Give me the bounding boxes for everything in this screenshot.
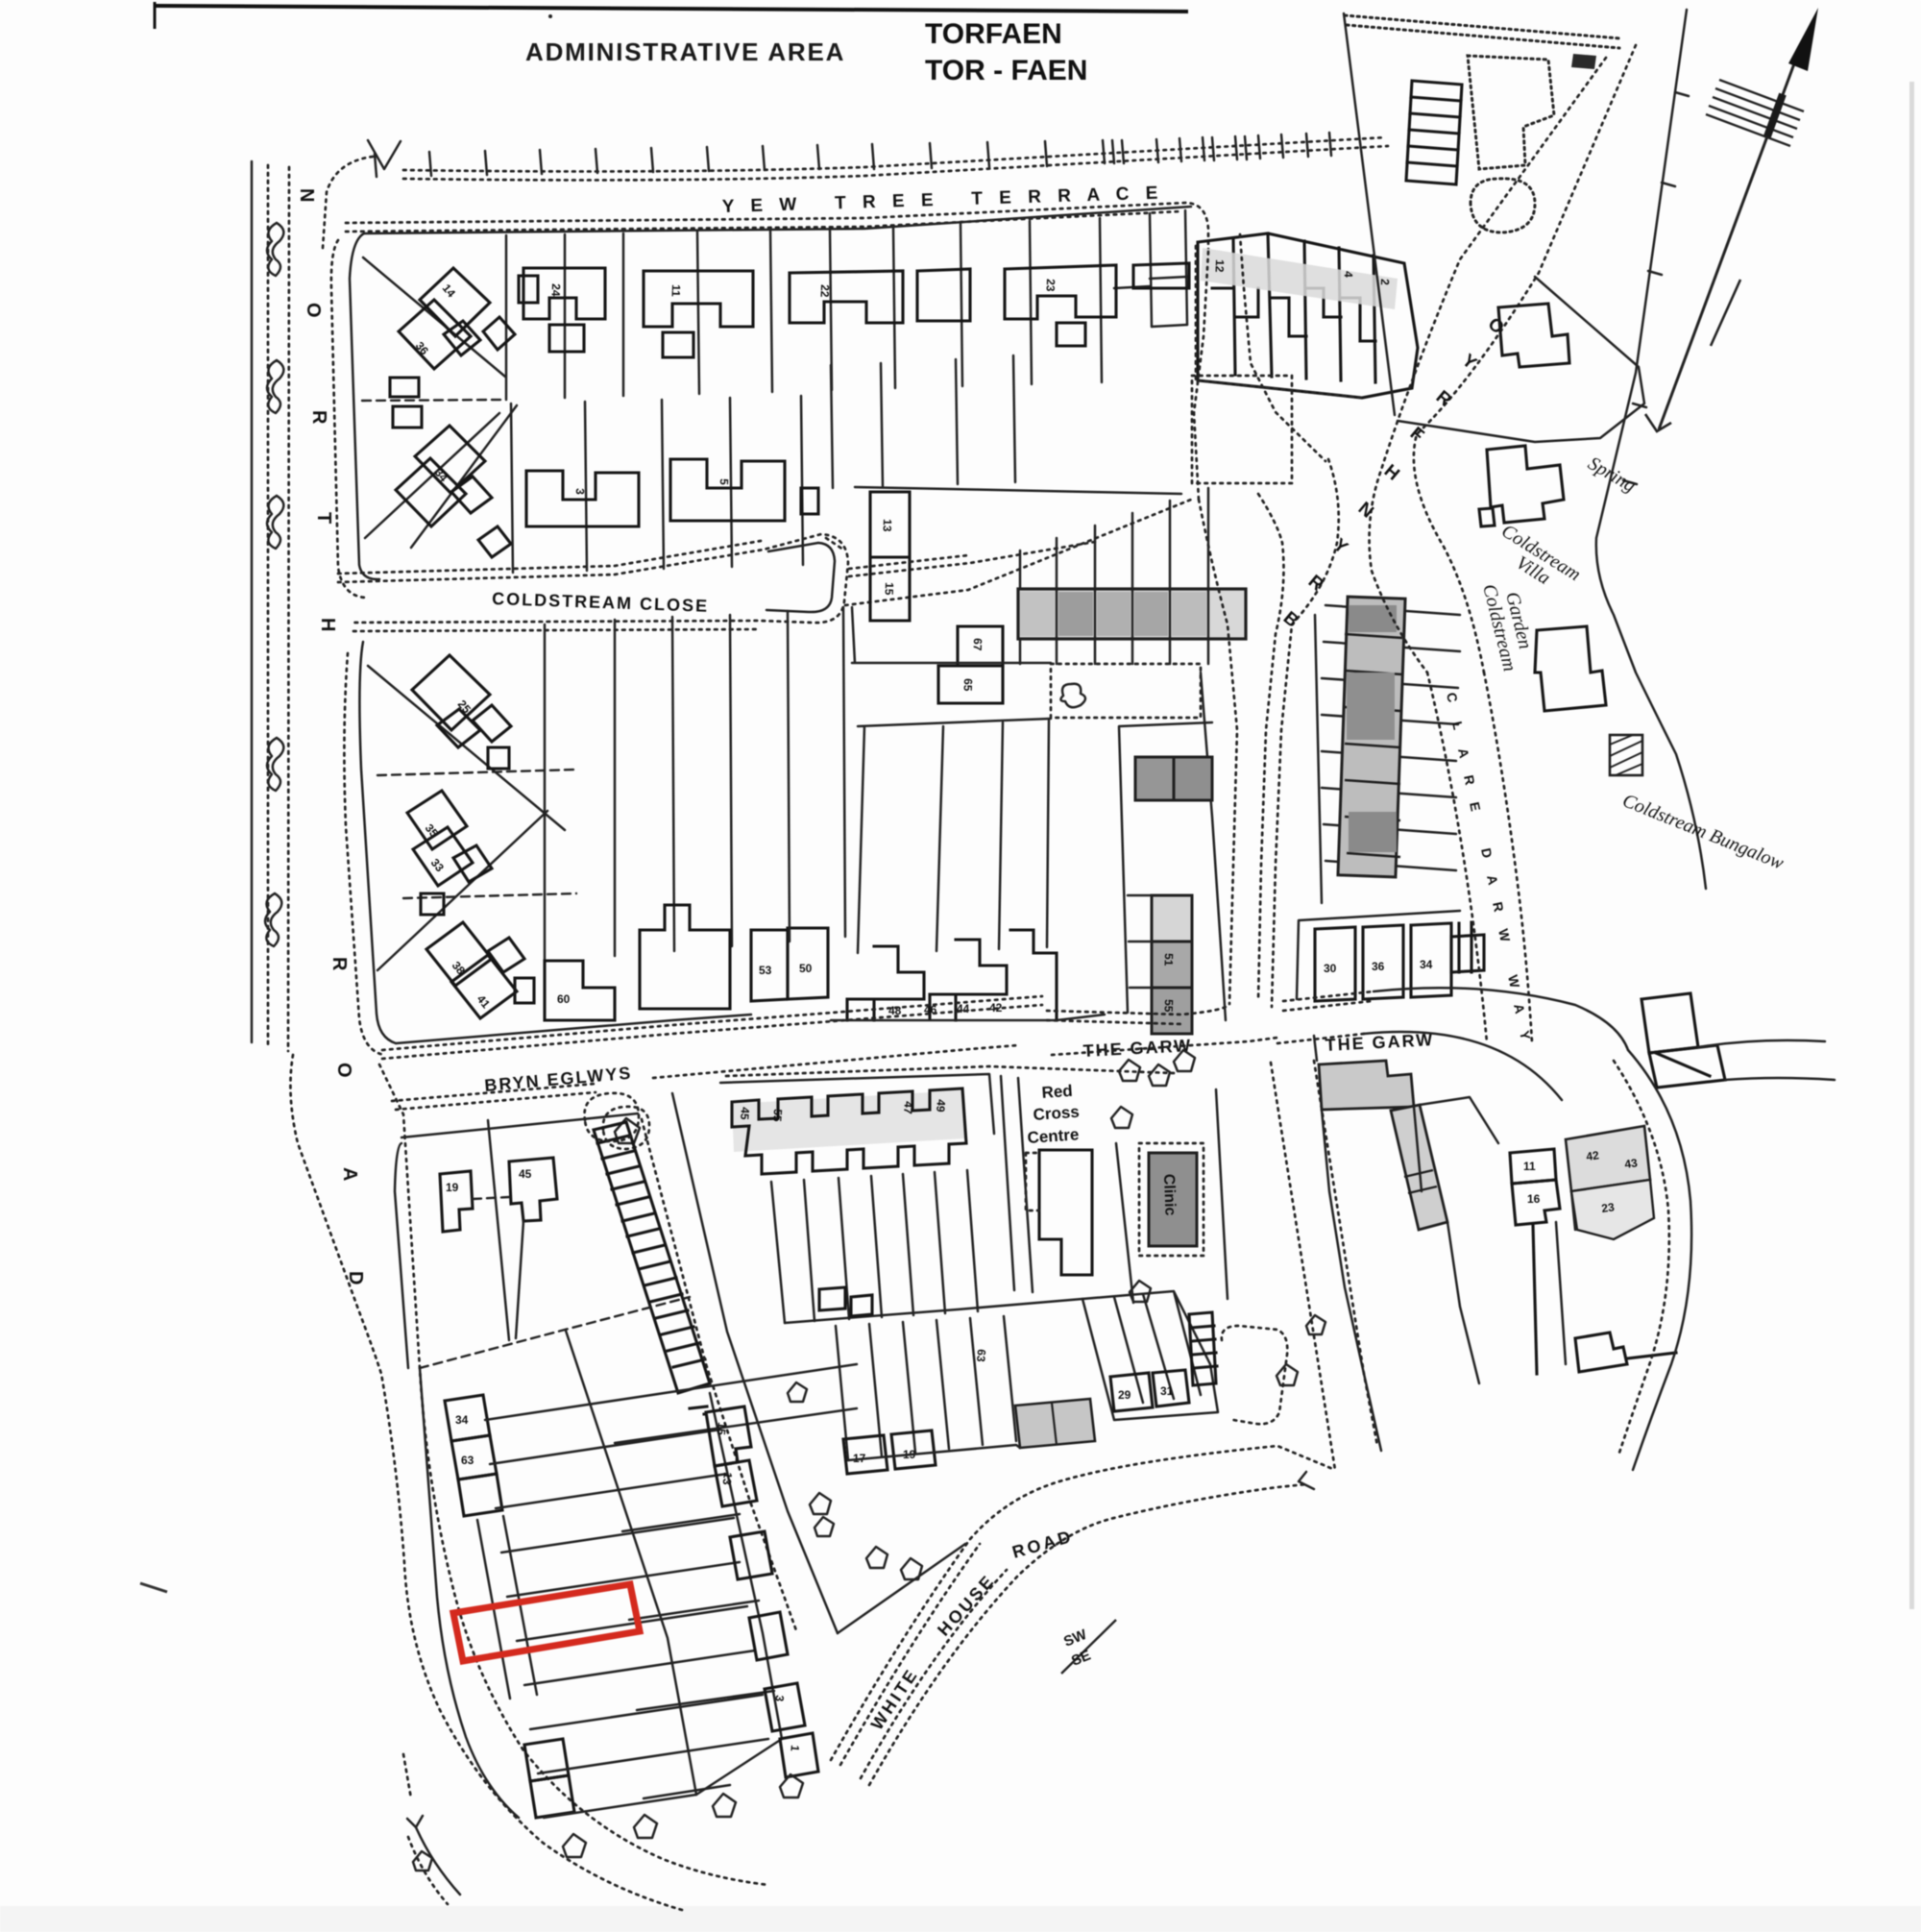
svg-text:12: 12 xyxy=(1213,259,1227,273)
svg-text:36: 36 xyxy=(1372,960,1385,973)
svg-text:Clinic: Clinic xyxy=(1160,1174,1179,1216)
svg-text:63: 63 xyxy=(461,1454,474,1467)
svg-text:47: 47 xyxy=(901,1101,915,1115)
svg-text:15: 15 xyxy=(715,1422,729,1436)
svg-text:TORFAEN: TORFAEN xyxy=(925,18,1062,50)
svg-text:TOR - FAEN: TOR - FAEN xyxy=(925,55,1087,86)
svg-text:T: T xyxy=(313,512,334,524)
svg-text:34: 34 xyxy=(1420,958,1433,971)
svg-text:45: 45 xyxy=(738,1107,752,1121)
svg-text:63: 63 xyxy=(974,1349,988,1363)
svg-text:60: 60 xyxy=(557,992,571,1006)
svg-text:O: O xyxy=(303,303,324,318)
svg-text:22: 22 xyxy=(818,284,832,298)
svg-text:55: 55 xyxy=(770,1109,785,1123)
svg-text:N: N xyxy=(296,188,317,202)
svg-text:55: 55 xyxy=(1162,999,1176,1013)
svg-text:R: R xyxy=(308,410,329,425)
svg-text:ADMINISTRATIVE AREA: ADMINISTRATIVE AREA xyxy=(525,37,845,66)
svg-text:50: 50 xyxy=(799,962,813,975)
svg-text:A: A xyxy=(339,1167,360,1181)
svg-text:13: 13 xyxy=(720,1472,735,1486)
svg-text:Cross: Cross xyxy=(1033,1103,1080,1124)
svg-text:67: 67 xyxy=(971,638,985,651)
svg-text:51: 51 xyxy=(1162,953,1176,966)
svg-text:29: 29 xyxy=(1118,1388,1131,1402)
svg-text:11: 11 xyxy=(1523,1160,1536,1173)
svg-text:30: 30 xyxy=(1324,962,1337,975)
svg-text:31: 31 xyxy=(1160,1384,1174,1398)
svg-text:Centre: Centre xyxy=(1027,1125,1080,1147)
svg-text:23: 23 xyxy=(1044,279,1058,292)
svg-text:4: 4 xyxy=(1342,271,1355,278)
svg-text:45: 45 xyxy=(519,1167,532,1181)
svg-text:5: 5 xyxy=(717,478,731,485)
svg-text:23: 23 xyxy=(1600,1200,1615,1215)
svg-text:34: 34 xyxy=(455,1413,469,1427)
svg-text:H: H xyxy=(317,618,338,631)
svg-text:19: 19 xyxy=(446,1181,459,1194)
svg-text:49: 49 xyxy=(934,1099,948,1113)
svg-text:11: 11 xyxy=(669,284,683,297)
svg-text:24: 24 xyxy=(549,283,563,297)
svg-text:R: R xyxy=(328,957,350,971)
svg-text:2: 2 xyxy=(1378,279,1392,285)
svg-text:Red: Red xyxy=(1041,1082,1073,1102)
svg-text:O: O xyxy=(333,1063,354,1078)
svg-text:15: 15 xyxy=(883,582,896,596)
svg-text:53: 53 xyxy=(759,964,772,977)
svg-text:43: 43 xyxy=(1623,1156,1638,1171)
svg-text:42: 42 xyxy=(1585,1148,1599,1163)
svg-text:65: 65 xyxy=(961,678,975,692)
svg-text:16: 16 xyxy=(1527,1192,1541,1206)
svg-text:13: 13 xyxy=(881,519,894,532)
